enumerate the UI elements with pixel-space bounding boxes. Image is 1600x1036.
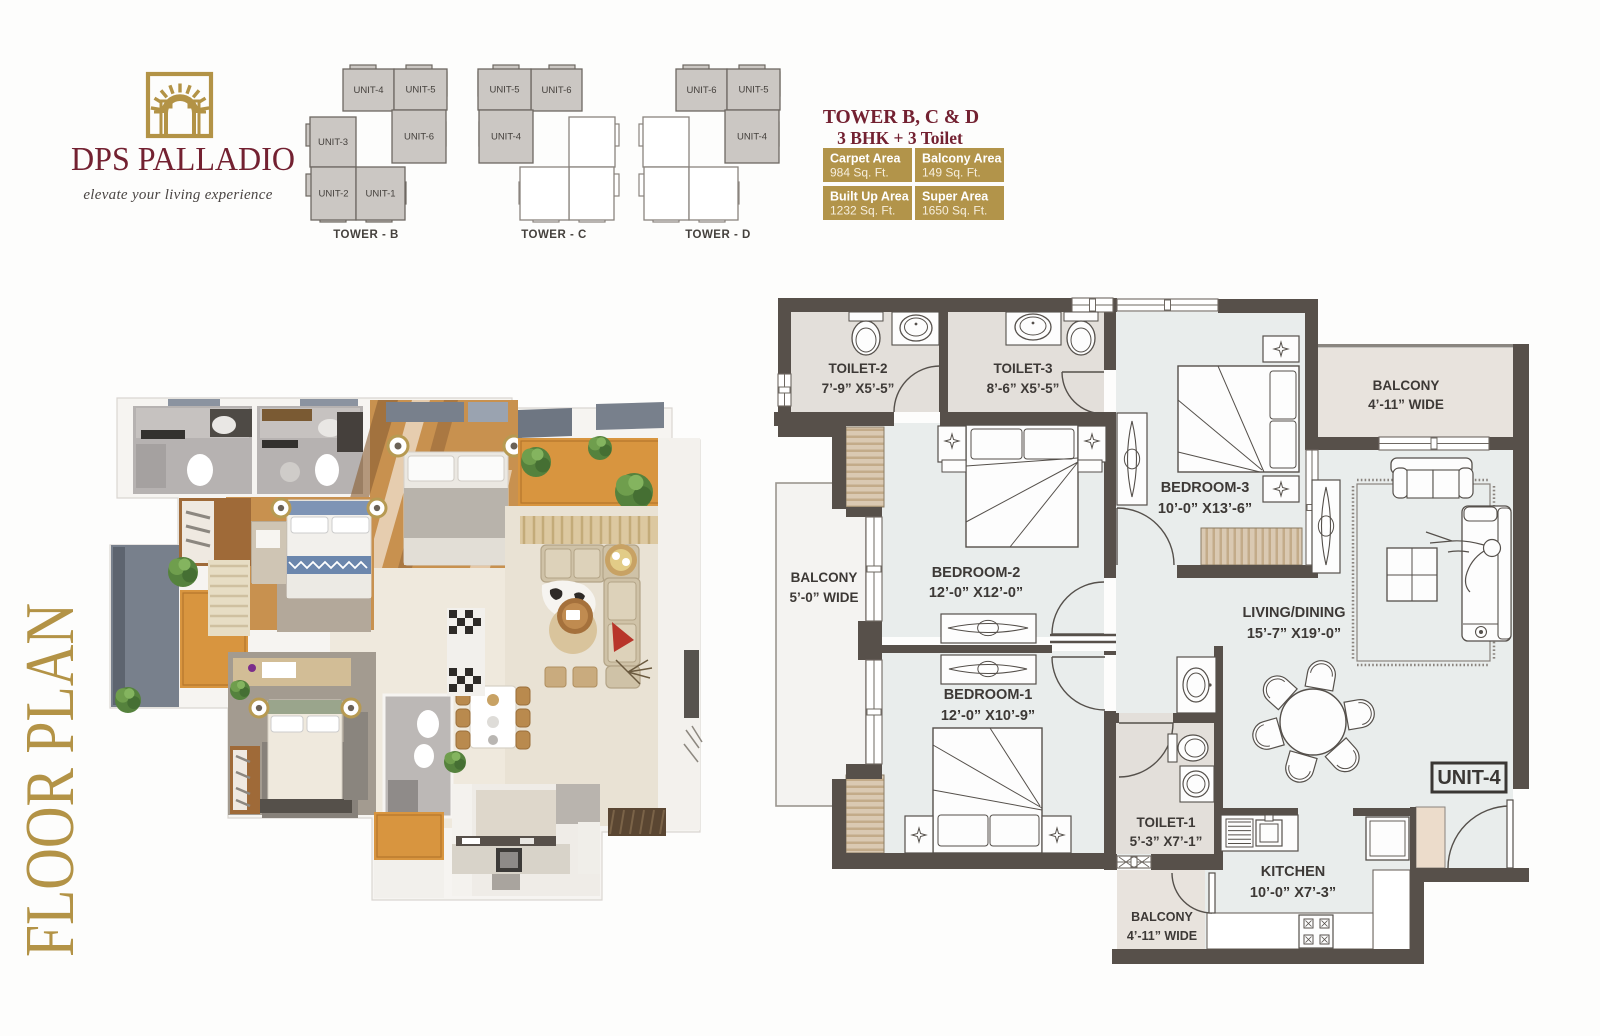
svg-text:BALCONY: BALCONY — [1373, 378, 1440, 393]
svg-text:UNIT-5: UNIT-5 — [405, 85, 435, 96]
svg-text:UNIT-4: UNIT-4 — [1437, 767, 1501, 789]
svg-text:TOILET-2: TOILET-2 — [828, 361, 887, 376]
svg-text:BEDROOM-1: BEDROOM-1 — [944, 687, 1033, 703]
svg-text:Built Up Area: Built Up Area — [830, 190, 910, 204]
svg-text:TOWER B, C & D: TOWER B, C & D — [823, 107, 979, 128]
svg-text:5’-0” WIDE: 5’-0” WIDE — [789, 590, 858, 605]
svg-text:UNIT-1: UNIT-1 — [365, 189, 395, 200]
svg-text:UNIT-4: UNIT-4 — [737, 132, 767, 143]
svg-text:984 Sq. Ft.: 984 Sq. Ft. — [830, 166, 889, 180]
svg-text:TOILET-3: TOILET-3 — [993, 361, 1053, 376]
svg-text:4’-11” WIDE: 4’-11” WIDE — [1127, 929, 1197, 943]
svg-text:UNIT-4: UNIT-4 — [491, 132, 521, 143]
svg-text:UNIT-5: UNIT-5 — [738, 85, 768, 96]
svg-text:UNIT-6: UNIT-6 — [404, 132, 434, 143]
svg-text:7’-9” X5’-5”: 7’-9” X5’-5” — [822, 381, 895, 396]
svg-text:BALCONY: BALCONY — [791, 570, 858, 585]
svg-text:TOWER - C: TOWER - C — [521, 229, 587, 241]
svg-text:BALCONY: BALCONY — [1131, 910, 1193, 924]
svg-text:UNIT-4: UNIT-4 — [353, 85, 383, 96]
svg-text:LIVING/DINING: LIVING/DINING — [1242, 605, 1345, 621]
svg-text:Carpet Area: Carpet Area — [830, 152, 901, 166]
svg-text:UNIT-6: UNIT-6 — [541, 85, 571, 96]
svg-text:15’-7” X19’-0”: 15’-7” X19’-0” — [1247, 626, 1341, 642]
svg-text:1232 Sq. Ft.: 1232 Sq. Ft. — [830, 204, 895, 218]
svg-text:Super Area: Super Area — [922, 190, 989, 204]
svg-text:12’-0” X12’-0”: 12’-0” X12’-0” — [929, 585, 1023, 601]
svg-text:10’-0” X7’-3”: 10’-0” X7’-3” — [1250, 885, 1336, 901]
svg-text:UNIT-3: UNIT-3 — [318, 137, 348, 148]
svg-text:149 Sq. Ft.: 149 Sq. Ft. — [922, 166, 981, 180]
svg-text:TOWER - B: TOWER - B — [333, 229, 399, 241]
svg-text:BEDROOM-3: BEDROOM-3 — [1161, 480, 1250, 496]
svg-text:4’-11” WIDE: 4’-11” WIDE — [1368, 397, 1444, 412]
svg-text:3 BHK + 3 Toilet: 3 BHK + 3 Toilet — [837, 128, 963, 148]
svg-text:TOWER - D: TOWER - D — [685, 229, 751, 241]
svg-text:12’-0” X10’-9”: 12’-0” X10’-9” — [941, 708, 1035, 724]
svg-text:1650 Sq. Ft.: 1650 Sq. Ft. — [922, 204, 987, 218]
svg-text:TOILET-1: TOILET-1 — [1136, 815, 1196, 830]
svg-text:UNIT-6: UNIT-6 — [686, 85, 716, 96]
svg-text:Balcony Area: Balcony Area — [922, 152, 1002, 166]
svg-text:KITCHEN: KITCHEN — [1261, 864, 1325, 880]
svg-text:10’-0” X13’-6”: 10’-0” X13’-6” — [1158, 501, 1252, 517]
svg-text:UNIT-5: UNIT-5 — [489, 85, 519, 96]
svg-text:elevate your living experience: elevate your living experience — [83, 187, 272, 203]
svg-text:5’-3” X7’-1”: 5’-3” X7’-1” — [1130, 834, 1203, 849]
svg-text:FLOOR PLAN: FLOOR PLAN — [12, 603, 89, 957]
svg-text:DPS PALLADIO: DPS PALLADIO — [71, 141, 295, 178]
svg-text:BEDROOM-2: BEDROOM-2 — [932, 565, 1021, 581]
svg-text:8’-6” X5’-5”: 8’-6” X5’-5” — [987, 381, 1060, 396]
svg-text:UNIT-2: UNIT-2 — [318, 189, 348, 200]
